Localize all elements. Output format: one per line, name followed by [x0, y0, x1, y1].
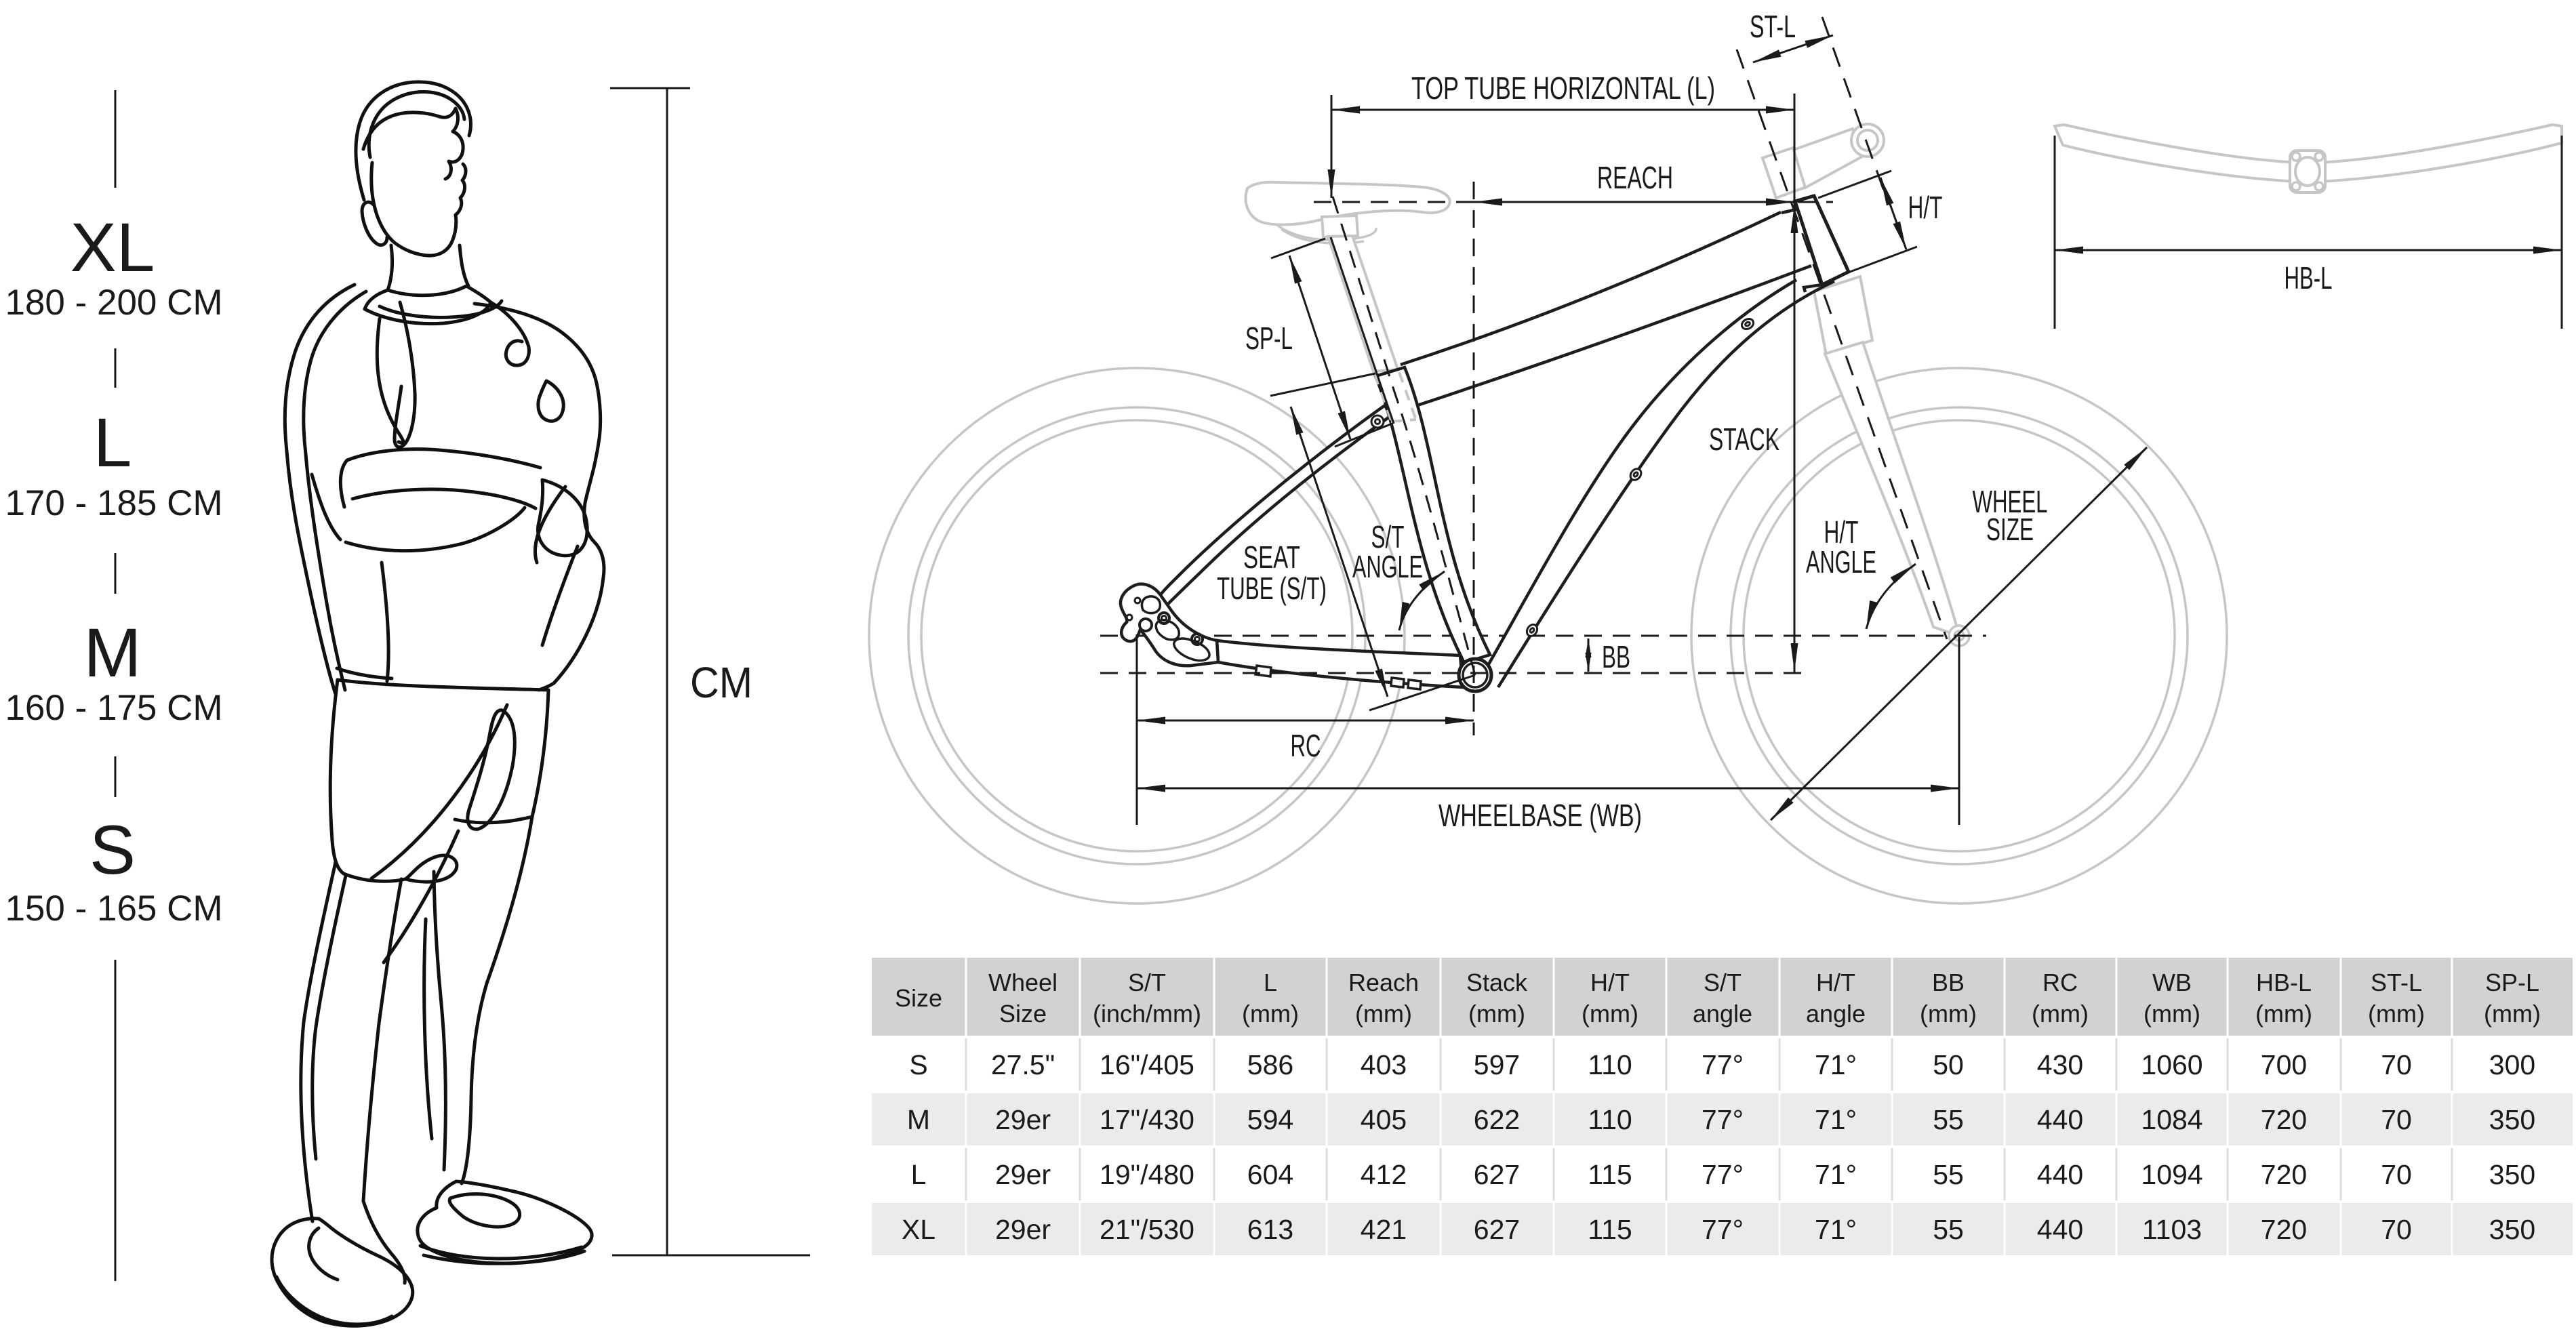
svg-text:ANGLE: ANGLE: [1806, 544, 1876, 579]
svg-text:55: 55: [1933, 1214, 1964, 1245]
svg-text:SEAT: SEAT: [1243, 540, 1300, 575]
svg-text:BB: BB: [1602, 639, 1630, 674]
svg-text:627: 627: [1474, 1159, 1520, 1190]
svg-text:350: 350: [2489, 1214, 2535, 1245]
svg-text:TUBE (S/T): TUBE (S/T): [1217, 571, 1327, 606]
svg-text:S: S: [909, 1049, 927, 1080]
svg-text:405: 405: [1361, 1104, 1407, 1135]
svg-text:SP-L: SP-L: [1245, 321, 1293, 356]
svg-text:L: L: [1264, 969, 1277, 996]
svg-text:H/T: H/T: [1816, 969, 1855, 996]
svg-text:440: 440: [2037, 1104, 2083, 1135]
svg-text:77°: 77°: [1702, 1214, 1744, 1245]
svg-text:Wheel: Wheel: [988, 969, 1058, 996]
svg-text:421: 421: [1361, 1214, 1407, 1245]
svg-text:170 - 185 CM: 170 - 185 CM: [5, 483, 222, 523]
svg-text:(mm): (mm): [2368, 1000, 2425, 1028]
svg-text:55: 55: [1933, 1159, 1964, 1190]
svg-text:CM: CM: [690, 658, 752, 707]
svg-text:412: 412: [1361, 1159, 1407, 1190]
svg-text:50: 50: [1933, 1049, 1964, 1080]
svg-text:613: 613: [1247, 1214, 1293, 1245]
svg-text:SIZE: SIZE: [1986, 512, 2034, 547]
svg-text:720: 720: [2261, 1214, 2307, 1245]
svg-text:150 - 165 CM: 150 - 165 CM: [5, 889, 222, 929]
svg-text:angle: angle: [1806, 1000, 1866, 1028]
svg-text:ST-L: ST-L: [1750, 9, 1796, 44]
svg-text:71°: 71°: [1815, 1159, 1857, 1190]
svg-text:700: 700: [2261, 1049, 2307, 1080]
svg-text:1060: 1060: [2141, 1049, 2202, 1080]
svg-text:110: 110: [1588, 1104, 1632, 1135]
svg-text:16"/405: 16"/405: [1100, 1049, 1194, 1080]
svg-text:(mm): (mm): [2144, 1000, 2200, 1028]
svg-text:594: 594: [1247, 1104, 1293, 1135]
svg-text:77°: 77°: [1702, 1049, 1744, 1080]
svg-text:S/T: S/T: [1704, 969, 1742, 996]
svg-text:300: 300: [2489, 1049, 2535, 1080]
svg-text:M: M: [84, 614, 142, 691]
svg-text:HB-L: HB-L: [2256, 969, 2312, 996]
svg-text:70: 70: [2381, 1104, 2412, 1135]
svg-text:ST-L: ST-L: [2371, 969, 2422, 996]
svg-text:(inch/mm): (inch/mm): [1093, 1000, 1201, 1028]
svg-text:440: 440: [2037, 1214, 2083, 1245]
svg-text:angle: angle: [1693, 1000, 1752, 1028]
svg-text:1084: 1084: [2141, 1104, 2202, 1135]
svg-text:403: 403: [1361, 1049, 1407, 1080]
svg-text:55: 55: [1933, 1104, 1964, 1135]
svg-text:160 - 175 CM: 160 - 175 CM: [5, 688, 222, 728]
svg-text:ANGLE: ANGLE: [1352, 549, 1423, 584]
svg-text:70: 70: [2381, 1159, 2412, 1190]
svg-text:110: 110: [1588, 1049, 1632, 1080]
svg-text:L: L: [911, 1159, 927, 1190]
svg-text:RC: RC: [2042, 969, 2078, 996]
svg-text:S/T: S/T: [1128, 969, 1166, 996]
svg-text:RC: RC: [1291, 728, 1321, 763]
svg-text:440: 440: [2037, 1159, 2083, 1190]
svg-text:350: 350: [2489, 1104, 2535, 1135]
svg-text:L: L: [94, 404, 132, 481]
svg-text:21"/530: 21"/530: [1100, 1214, 1194, 1245]
svg-text:17"/430: 17"/430: [1100, 1104, 1194, 1135]
svg-text:HB-L: HB-L: [2285, 260, 2333, 296]
svg-text:S: S: [89, 811, 136, 889]
svg-text:1094: 1094: [2141, 1159, 2202, 1190]
svg-text:(mm): (mm): [2032, 1000, 2089, 1028]
svg-text:Reach: Reach: [1348, 969, 1419, 996]
svg-text:586: 586: [1247, 1049, 1293, 1080]
svg-text:(mm): (mm): [1582, 1000, 1638, 1028]
svg-text:H/T: H/T: [1908, 190, 1943, 225]
svg-text:70: 70: [2381, 1049, 2412, 1080]
svg-text:(mm): (mm): [1242, 1000, 1299, 1028]
svg-text:115: 115: [1588, 1159, 1632, 1190]
svg-text:430: 430: [2037, 1049, 2083, 1080]
svg-text:29er: 29er: [995, 1214, 1051, 1245]
svg-text:115: 115: [1588, 1214, 1632, 1245]
svg-text:XL: XL: [902, 1214, 935, 1245]
svg-text:180 - 200 CM: 180 - 200 CM: [5, 283, 222, 323]
svg-text:SP-L: SP-L: [2485, 969, 2539, 996]
svg-text:627: 627: [1474, 1214, 1520, 1245]
svg-text:71°: 71°: [1815, 1049, 1857, 1080]
svg-text:597: 597: [1474, 1049, 1520, 1080]
svg-text:STACK: STACK: [1709, 422, 1779, 457]
svg-text:(mm): (mm): [1468, 1000, 1525, 1028]
svg-text:71°: 71°: [1815, 1214, 1857, 1245]
svg-text:Size: Size: [895, 984, 942, 1012]
svg-text:604: 604: [1247, 1159, 1293, 1190]
svg-text:M: M: [907, 1104, 930, 1135]
svg-text:(mm): (mm): [2484, 1000, 2541, 1028]
svg-text:REACH: REACH: [1597, 160, 1673, 195]
svg-text:19"/480: 19"/480: [1100, 1159, 1194, 1190]
svg-text:(mm): (mm): [1355, 1000, 1412, 1028]
svg-text:BB: BB: [1932, 969, 1965, 996]
svg-text:29er: 29er: [995, 1104, 1051, 1135]
svg-text:27.5": 27.5": [991, 1049, 1055, 1080]
svg-text:(mm): (mm): [2255, 1000, 2312, 1028]
svg-text:Stack: Stack: [1466, 969, 1528, 996]
svg-text:WHEELBASE (WB): WHEELBASE (WB): [1438, 798, 1642, 833]
svg-text:1103: 1103: [2142, 1214, 2202, 1245]
svg-text:TOP TUBE HORIZONTAL (L): TOP TUBE HORIZONTAL (L): [1411, 70, 1715, 106]
svg-text:(mm): (mm): [1920, 1000, 1977, 1028]
svg-text:XL: XL: [71, 209, 155, 286]
svg-text:77°: 77°: [1702, 1159, 1744, 1190]
svg-text:77°: 77°: [1702, 1104, 1744, 1135]
svg-text:71°: 71°: [1815, 1104, 1857, 1135]
svg-text:H/T: H/T: [1590, 969, 1630, 996]
svg-text:70: 70: [2381, 1214, 2412, 1245]
svg-text:622: 622: [1474, 1104, 1520, 1135]
svg-text:720: 720: [2261, 1159, 2307, 1190]
svg-text:Size: Size: [999, 1000, 1047, 1028]
svg-text:WB: WB: [2152, 969, 2192, 996]
svg-text:350: 350: [2489, 1159, 2535, 1190]
svg-text:29er: 29er: [995, 1159, 1051, 1190]
svg-text:720: 720: [2261, 1104, 2307, 1135]
